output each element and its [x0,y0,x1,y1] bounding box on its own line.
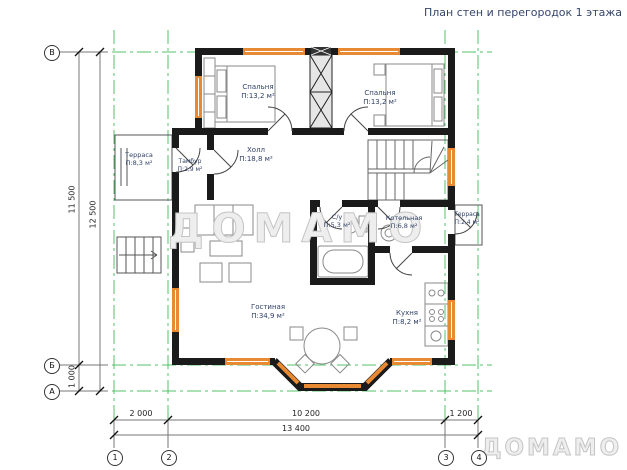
floor-plan-page: ДОМАМО ДОМАМО План стен и перегородок 1 … [0,0,627,470]
axis-row-v: В [44,45,60,61]
room-area: П:2,4 м² [448,219,486,227]
room-label-tambour: Тамбур П:2,9 м² [166,158,214,174]
axis-col-2: 2 [161,450,177,466]
dim-bottom-1: 2 000 [111,409,171,418]
axis-row-b: Б [44,358,60,374]
room-label-terrace-left: Терраса П:8,3 м² [107,151,171,168]
watermark-corner: ДОМАМО [481,435,622,461]
room-area: П:8,2 м² [375,318,439,327]
room-label-boiler: Котельная П:6,8 м² [373,214,435,231]
dim-bottom-2: 10 200 [276,409,336,418]
room-label-bedroom-left: Спальня П:13,2 м² [213,83,303,101]
room-area: П:13,2 м² [213,92,303,101]
room-name: Терраса [448,211,486,219]
room-label-kitchen: Кухня П:8,2 м² [375,309,439,327]
page-title: План стен и перегородок 1 этажа [424,6,622,19]
room-label-bedroom-right: Спальня П:13,2 м² [335,89,425,107]
room-area: П:5,3 м² [314,221,360,229]
dim-left-1: 11 500 [68,170,77,230]
room-area: П:18,8 м² [221,155,291,164]
dim-left-2: 1 000 [68,347,77,407]
room-name: Спальня [213,83,303,92]
room-area: П:34,9 м² [223,312,313,321]
dim-left-total: 12 500 [89,185,98,245]
axis-row-a: А [44,384,60,400]
room-name: Кухня [375,309,439,318]
room-area: П:8,3 м² [107,159,171,167]
chimney-shafts [310,47,332,128]
axis-col-4: 4 [471,450,487,466]
axis-col-1: 1 [107,450,123,466]
room-label-wc: С/у П:5,3 м² [314,213,360,230]
room-label-hall: Холл П:18,8 м² [221,146,291,164]
room-name: Котельная [373,214,435,222]
dim-bottom-3: 1 200 [431,409,491,418]
room-name: Гостиная [223,303,313,312]
room-name: Терраса [107,151,171,159]
room-area: П:6,8 м² [373,222,435,230]
staircase [368,140,448,200]
dining-table [290,327,357,373]
room-label-terrace-right: Терраса П:2,4 м² [448,211,486,227]
room-name: Холл [221,146,291,155]
room-name: С/у [314,213,360,221]
dim-bottom-total: 13 400 [266,424,326,433]
axis-col-3: 3 [438,450,454,466]
room-label-living: Гостиная П:34,9 м² [223,303,313,321]
room-area: П:13,2 м² [335,98,425,107]
room-name: Спальня [335,89,425,98]
entry-steps [117,237,161,273]
room-name: Тамбур [166,158,214,166]
room-area: П:2,9 м² [166,166,214,174]
